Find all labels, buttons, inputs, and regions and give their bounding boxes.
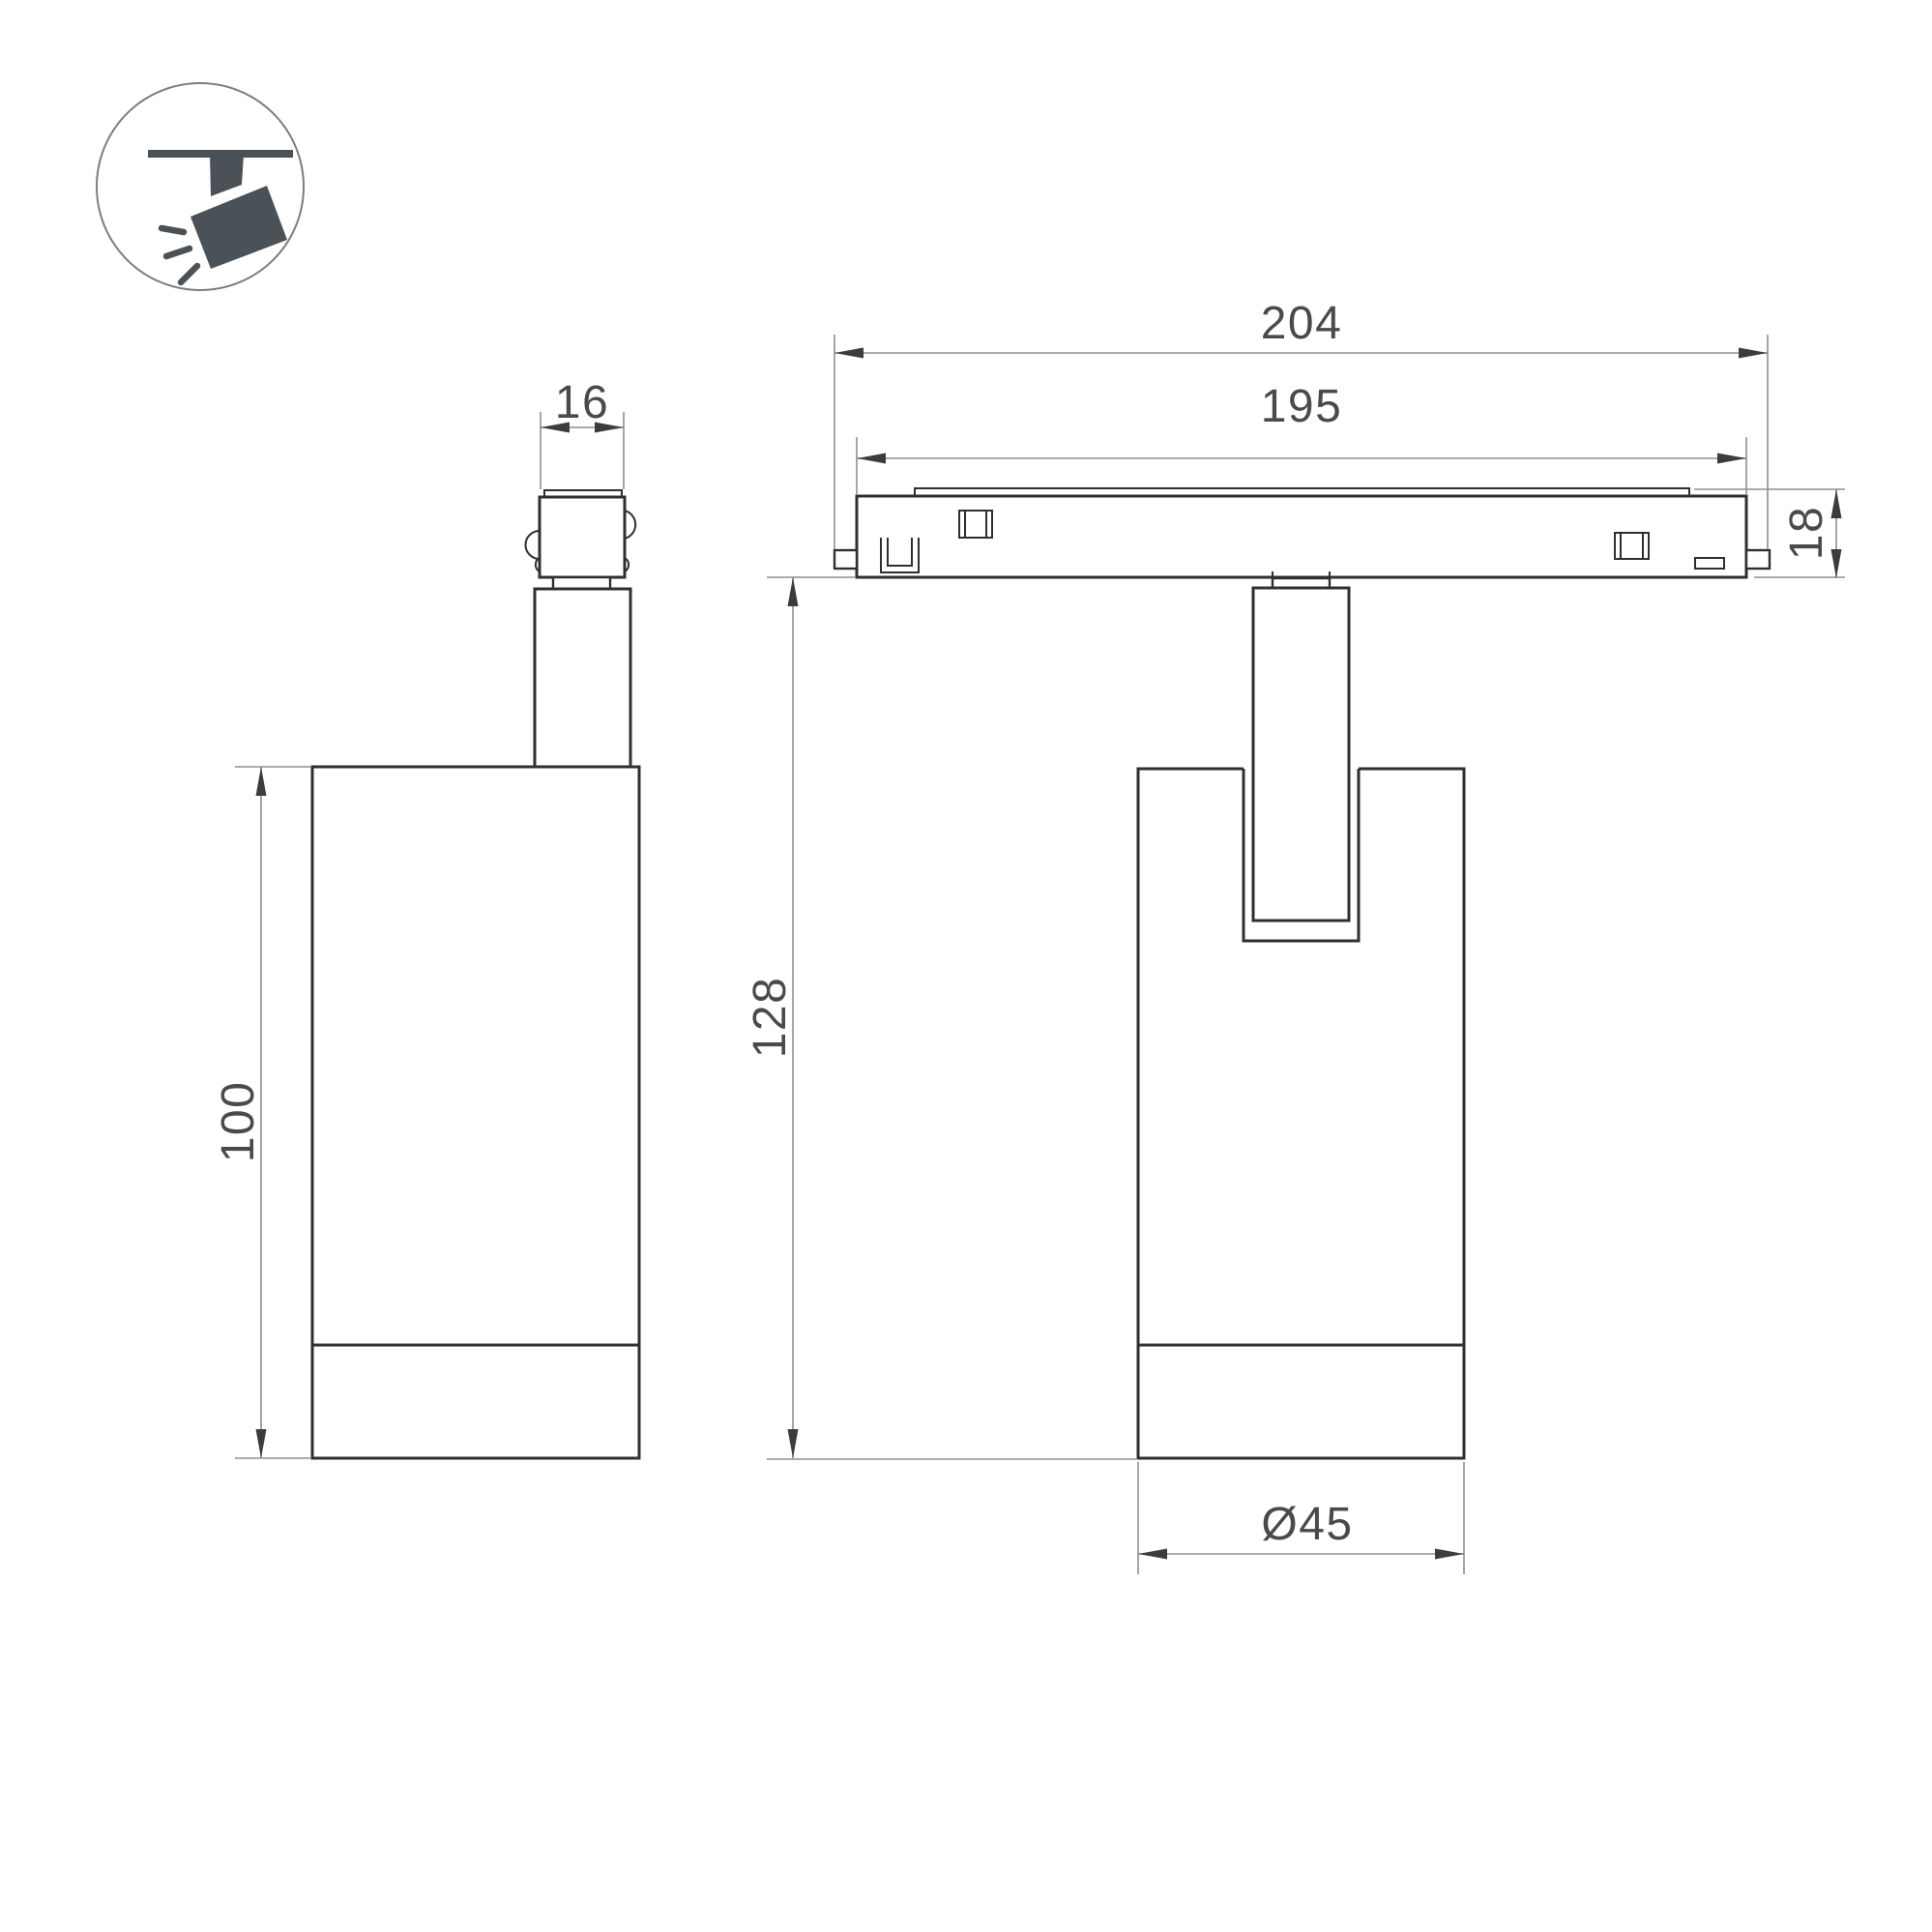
icon-circle <box>97 83 304 290</box>
dim-45-arrow-right <box>1435 1549 1464 1560</box>
dim-100-arrow-top <box>256 767 267 796</box>
adapter-box <box>540 497 625 577</box>
dimension-45: Ø45 <box>1138 1462 1464 1574</box>
side-view <box>312 490 639 1458</box>
dim-128-arrow-bottom <box>788 1429 799 1458</box>
adapter-clip-right-large <box>625 511 635 539</box>
dimension-16: 16 <box>541 377 624 489</box>
dimension-100: 100 <box>213 767 310 1458</box>
dim-100-label: 100 <box>213 1081 264 1163</box>
front-view <box>834 488 1770 1458</box>
dim-195-arrow-right <box>1717 454 1746 464</box>
dim-45-arrow-left <box>1138 1549 1167 1560</box>
technical-drawing: 16 100 <box>0 0 1932 1932</box>
dim-195-arrow-left <box>857 454 886 464</box>
stem-side <box>535 589 630 767</box>
dim-204-arrow-left <box>834 348 864 359</box>
dim-18-arrow-top <box>1831 489 1842 518</box>
dim-128-label: 128 <box>745 977 796 1059</box>
dim-100-arrow-bottom <box>256 1429 267 1458</box>
stem-front <box>1253 588 1349 921</box>
dim-195-label: 195 <box>1261 381 1343 432</box>
track-end-tab-left <box>834 550 857 569</box>
dim-18-arrow-bottom <box>1831 549 1842 578</box>
icon-light-ray <box>161 228 184 232</box>
housing-side <box>312 767 639 1458</box>
adapter-clip-left-large <box>526 531 541 559</box>
dimension-128: 128 <box>745 577 1136 1459</box>
track-end-tab-right <box>1746 550 1770 569</box>
dim-16-label: 16 <box>555 377 609 428</box>
dim-45-label: Ø45 <box>1261 1499 1353 1550</box>
dim-128-arrow-top <box>788 577 799 606</box>
adapter-neck <box>553 577 610 589</box>
dimension-195: 195 <box>857 381 1746 494</box>
dim-18-label: 18 <box>1781 506 1832 560</box>
dim-204-label: 204 <box>1261 298 1343 349</box>
dim-204-arrow-right <box>1739 348 1768 359</box>
drawing-canvas: 16 100 <box>0 0 1932 1932</box>
track-spotlight-icon <box>97 83 304 290</box>
